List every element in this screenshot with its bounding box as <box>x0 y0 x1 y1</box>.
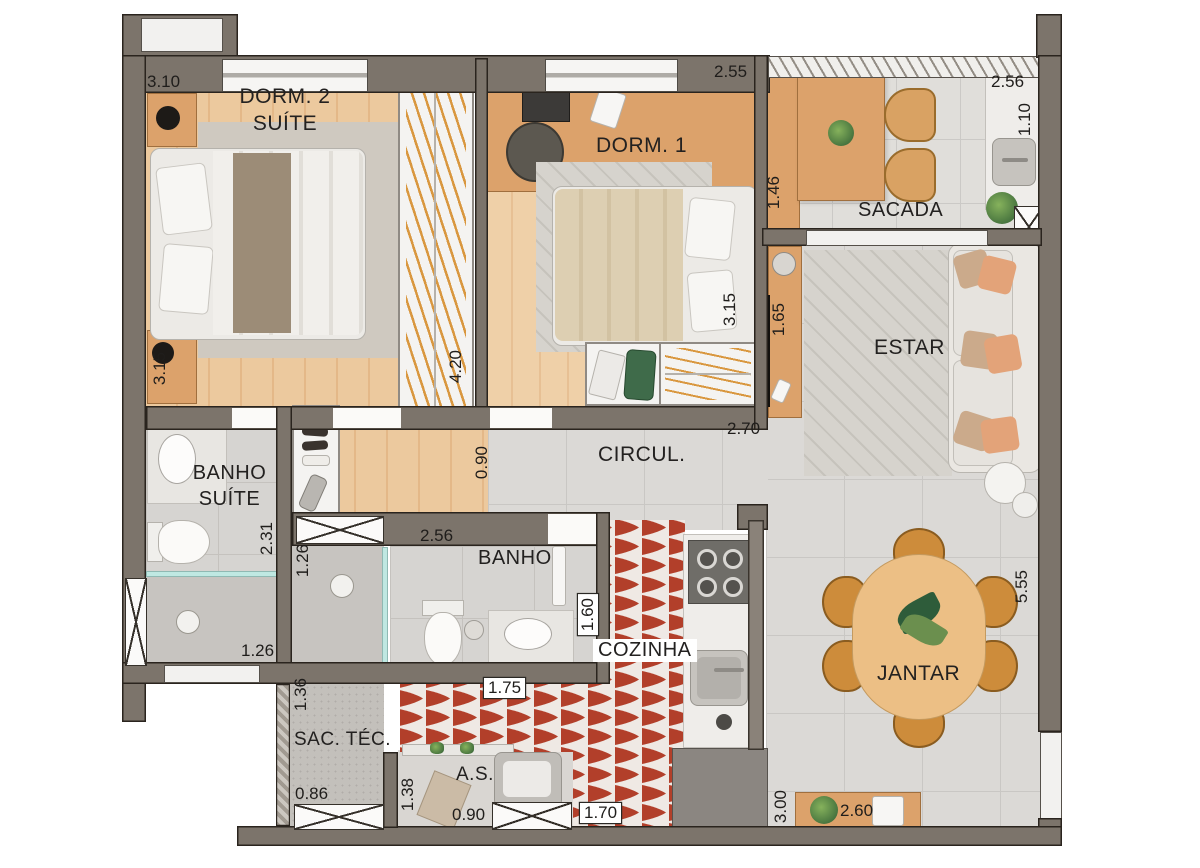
bump-window <box>141 18 223 52</box>
banho-suite-line1: BANHO <box>172 460 287 486</box>
room-label-estar: ESTAR <box>874 336 945 360</box>
dim-dorm2-width: 3.10 <box>147 72 180 92</box>
wall-dorm-divider <box>475 58 488 415</box>
sactec-glass-wall <box>276 684 290 826</box>
room-label-dorm1: DORM. 1 <box>596 134 687 158</box>
burner <box>723 549 743 569</box>
room-label-as: A.S. <box>456 764 494 786</box>
suite-toilet-bowl <box>158 520 210 564</box>
dim-banho-shower: 1.26 <box>293 544 313 577</box>
wall-right <box>1038 55 1062 732</box>
suitcase-green <box>623 349 656 401</box>
dim-as-depth: 1.38 <box>398 778 418 811</box>
dim-banho-suite-width: 1.26 <box>241 641 274 661</box>
dim-cozinha-bottom: 1.70 <box>580 803 621 823</box>
shoes <box>302 455 330 466</box>
dim-banho-width: 2.56 <box>420 526 453 546</box>
as-tank-bowl <box>503 761 551 797</box>
dorm2-pillow <box>155 162 213 236</box>
dorm2-line1: DORM. 2 <box>205 83 365 110</box>
dorm2-lamp-top <box>156 106 180 130</box>
closet-divider <box>659 344 661 404</box>
shoes <box>302 440 329 451</box>
dim-jantar-bottom: 3.00 <box>771 790 791 823</box>
banho-door-opening <box>548 514 600 544</box>
dorm1-pillow <box>684 197 736 261</box>
dorm2-line2: SUÍTE <box>205 110 365 137</box>
suitcase-white <box>588 349 626 400</box>
banho-sink <box>504 618 552 650</box>
estar-rug <box>804 250 952 476</box>
dim-cozinha-passage: 1.75 <box>484 678 525 698</box>
banho-suite-line2: SUÍTE <box>172 486 287 512</box>
sofa-pillow <box>983 333 1023 374</box>
sideboard-books <box>872 796 904 826</box>
banho-shower-glass <box>383 548 387 662</box>
sacada-faucet <box>1002 158 1028 162</box>
dim-sideboard: 2.60 <box>840 801 873 821</box>
sideboard-bowl <box>810 796 838 824</box>
dorm1-laptop <box>522 88 570 122</box>
moka-pot <box>716 714 732 730</box>
dim-cozinha-width: 1.60 <box>578 594 598 635</box>
room-label-circul: CIRCUL. <box>598 443 686 467</box>
burner <box>697 549 717 569</box>
dorm1-closet <box>585 342 756 406</box>
kitchen-sink-bowl <box>697 657 741 699</box>
sacada-sink <box>992 138 1036 186</box>
speaker <box>772 252 796 276</box>
dim-sacada-counter: 2.56 <box>991 72 1024 92</box>
dim-sactec-width: 0.86 <box>295 784 328 804</box>
sofa-pillow <box>980 416 1020 455</box>
dim-jantar-depth: 5.55 <box>1012 570 1032 603</box>
room-label-sac-tec: SAC. TÉC. <box>294 729 391 751</box>
dim-dorm2-depth: 3.15 <box>150 352 170 385</box>
dorm2-door-opening <box>333 408 401 428</box>
sacada-chair <box>884 148 936 202</box>
as-plant <box>430 742 444 754</box>
burner <box>697 577 717 597</box>
side-table-small <box>1012 492 1038 518</box>
floor-plan: DORM. 2 SUÍTE DORM. 1 SACADA ESTAR CIRCU… <box>0 0 1200 868</box>
wall-banho-suite-right <box>276 406 292 684</box>
dorm1-duvet <box>555 189 683 341</box>
dim-as-width: 0.90 <box>452 805 485 825</box>
closet-rod <box>665 373 751 375</box>
sactec-window <box>294 804 384 830</box>
kitchen-faucet <box>714 668 744 672</box>
dim-sacada-cabinet: 1.46 <box>764 176 784 209</box>
banho-toilet-bowl <box>424 612 462 666</box>
dorm2-throw <box>233 153 291 333</box>
suite-left-window <box>125 578 147 666</box>
banho-shower-window <box>296 516 384 544</box>
room-label-dorm2: DORM. 2 SUÍTE <box>205 83 365 137</box>
dorm1-door-opening <box>490 408 552 428</box>
wall-kitchen-jantar <box>748 520 764 750</box>
vacuum <box>297 473 328 513</box>
window-right-low <box>1040 732 1062 822</box>
dim-closet-depth: 4.20 <box>446 350 466 383</box>
dim-estar-rack: 1.65 <box>769 303 789 336</box>
banho-shower-head <box>330 574 354 598</box>
dorm2-bed <box>150 148 366 340</box>
room-label-banho-suite: BANHO SUÍTE <box>172 460 287 512</box>
as-window <box>492 802 572 830</box>
dorm2-pillow <box>158 243 214 315</box>
cooktop <box>688 540 752 604</box>
room-label-cozinha: COZINHA <box>593 639 697 662</box>
wall-top-right-bump <box>1036 14 1062 58</box>
as-tank <box>494 752 562 808</box>
dim-banho-suite-depth: 2.31 <box>257 522 277 555</box>
dim-dorm1-width: 2.55 <box>714 62 747 82</box>
banho-hamper <box>464 620 484 640</box>
room-label-jantar: JANTAR <box>877 662 960 686</box>
suite-shower-glass <box>147 572 277 576</box>
suite-door-opening <box>232 408 278 428</box>
banho-door-leaf <box>552 546 566 606</box>
sacada-chair <box>884 88 936 142</box>
burner <box>723 577 743 597</box>
estar-window-door <box>806 230 988 246</box>
wardrobe-rod <box>434 70 436 408</box>
suite-shower-head <box>176 610 200 634</box>
wall-sactec-as <box>383 752 398 828</box>
dim-sacada-sink: 1.10 <box>1015 103 1035 136</box>
suite-bottom-window <box>164 665 260 683</box>
kitchen-sink <box>690 650 748 706</box>
dorm1-window <box>545 59 678 92</box>
kitchen-island-cabinet <box>672 748 768 830</box>
sacada-table-plant <box>828 120 854 146</box>
dim-sactec-depth: 1.36 <box>291 678 311 711</box>
room-label-banho: BANHO <box>478 547 552 570</box>
dim-circul-width: 2.70 <box>727 419 760 439</box>
dim-hall-width: 0.90 <box>472 446 492 479</box>
dim-dorm1-depth: 3.15 <box>720 293 740 326</box>
as-plant <box>460 742 474 754</box>
room-label-sacada: SACADA <box>858 199 943 222</box>
